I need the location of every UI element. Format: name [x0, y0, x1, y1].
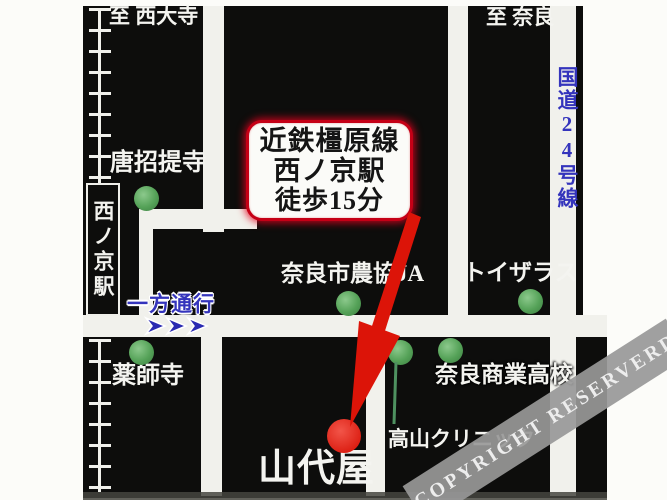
main-road-horizontal	[83, 315, 607, 337]
landmark-label-toys-r-us: トイザラス	[463, 261, 578, 285]
road-yakushiji-vertical	[201, 315, 222, 496]
photo-bottom-edge	[83, 492, 607, 500]
road-top-vertical-east	[448, 6, 468, 337]
station-box: 西ノ京駅	[86, 183, 120, 316]
landmark-label-toshodaiji: 唐招提寺	[110, 151, 206, 176]
route24-label: 国道24号線	[552, 66, 582, 210]
road-top-vertical-west	[203, 6, 224, 232]
landmark-dot-toys-r-us	[518, 289, 543, 314]
label-to-saidaiji: 至 西大寺	[109, 5, 198, 27]
landmark-dot-ja-coop	[336, 291, 361, 316]
road-toshodaiji-horizontal	[139, 209, 257, 229]
landmark-dot-yakushiji	[129, 340, 154, 365]
callout-line-2: 西ノ京駅	[249, 156, 410, 186]
landmark-label-ja-coop: 奈良市農協JA	[281, 262, 424, 286]
access-map: 西ノ京駅 至 西大寺 至 奈良 国道24号線 一方通行 唐招提寺 薬師寺 奈良市…	[0, 0, 667, 500]
callout-line-3: 徒歩15分	[249, 186, 410, 216]
destination-label: 山代屋	[258, 450, 375, 490]
destination-marker	[327, 419, 361, 453]
label-to-nara: 至 奈良	[486, 6, 554, 28]
landmark-label-commercial-high-school: 奈良商業高校	[435, 363, 573, 387]
railway-line-upper	[89, 8, 111, 184]
landmark-dot-clinic	[388, 340, 413, 365]
landmark-label-yakushiji: 薬師寺	[112, 364, 184, 389]
landmark-dot-high-school	[438, 338, 463, 363]
landmark-dot-toshodaiji	[134, 186, 159, 211]
one-way-label: 一方通行	[127, 288, 215, 318]
callout-box: 近鉄橿原線 西ノ京駅 徒歩15分	[246, 120, 413, 221]
railway-line-lower	[89, 339, 111, 492]
callout-line-1: 近鉄橿原線	[249, 126, 410, 156]
